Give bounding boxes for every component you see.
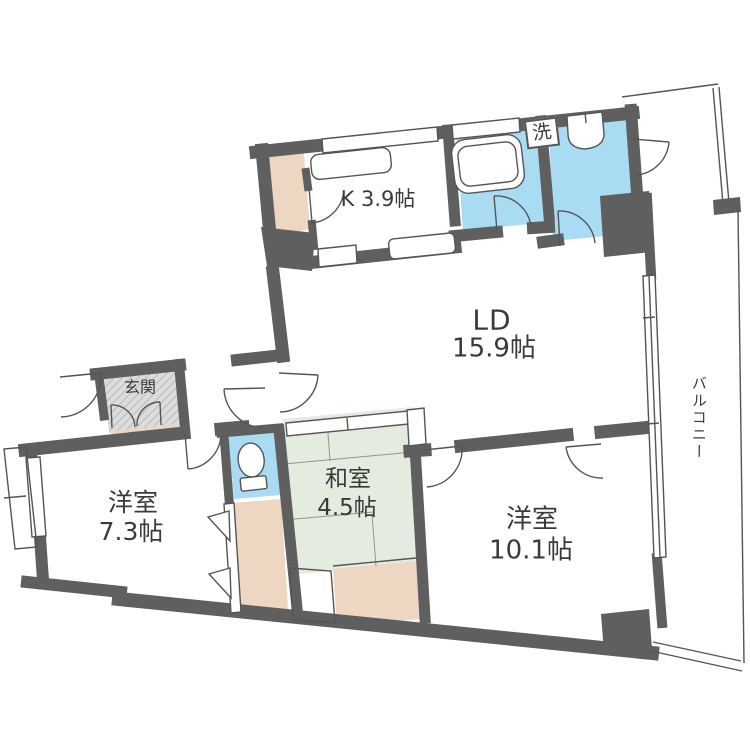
wall-segment [601,427,652,432]
balcony-label: バルコニー [690,376,706,461]
wall-segment [261,227,315,271]
floor-plan-drawing [0,0,750,750]
wall-segment [631,110,637,193]
wall-segment [543,240,558,242]
wall-segment [221,428,279,433]
laundry-label: 洗 [524,117,560,150]
living-label: LD [472,305,511,334]
kitchen-counter-hatch [318,245,357,267]
western2-size: 10.1帖 [489,537,573,564]
western2-label: 洋室 [506,506,558,533]
wall-segment [410,450,425,451]
japanese-corner-opening [407,408,426,446]
entrance-label: 玄関 [124,380,156,397]
balcony-divider-wall [713,197,741,215]
wall-segment [99,376,104,416]
japanese-size: 4.5帖 [317,496,377,520]
western1-size: 7.3帖 [99,519,164,545]
closet-1 [233,499,288,613]
floor-plan: K 3.9帖 LD 15.9帖 洋室 7.3帖 和室 4.5帖 洋室 10.1帖… [0,0,750,750]
wall-segment [647,198,651,274]
wall-segment [40,537,43,580]
wall-segment [601,609,652,652]
wall-segment [533,227,549,228]
wall-segment [262,150,270,235]
kitchen-label: K 3.9帖 [341,188,416,210]
japanese-label: 和室 [325,467,371,491]
washroom-sink [567,112,604,149]
wall-segment [306,172,308,187]
living-size: 15.9帖 [452,335,536,362]
wall-segment [455,232,497,236]
bathtub [450,133,526,195]
wall-segment [179,364,185,428]
wall-segment [224,435,229,499]
western1-label: 洋室 [108,490,158,516]
wall-segment [657,558,662,623]
wall-segment [237,355,282,360]
